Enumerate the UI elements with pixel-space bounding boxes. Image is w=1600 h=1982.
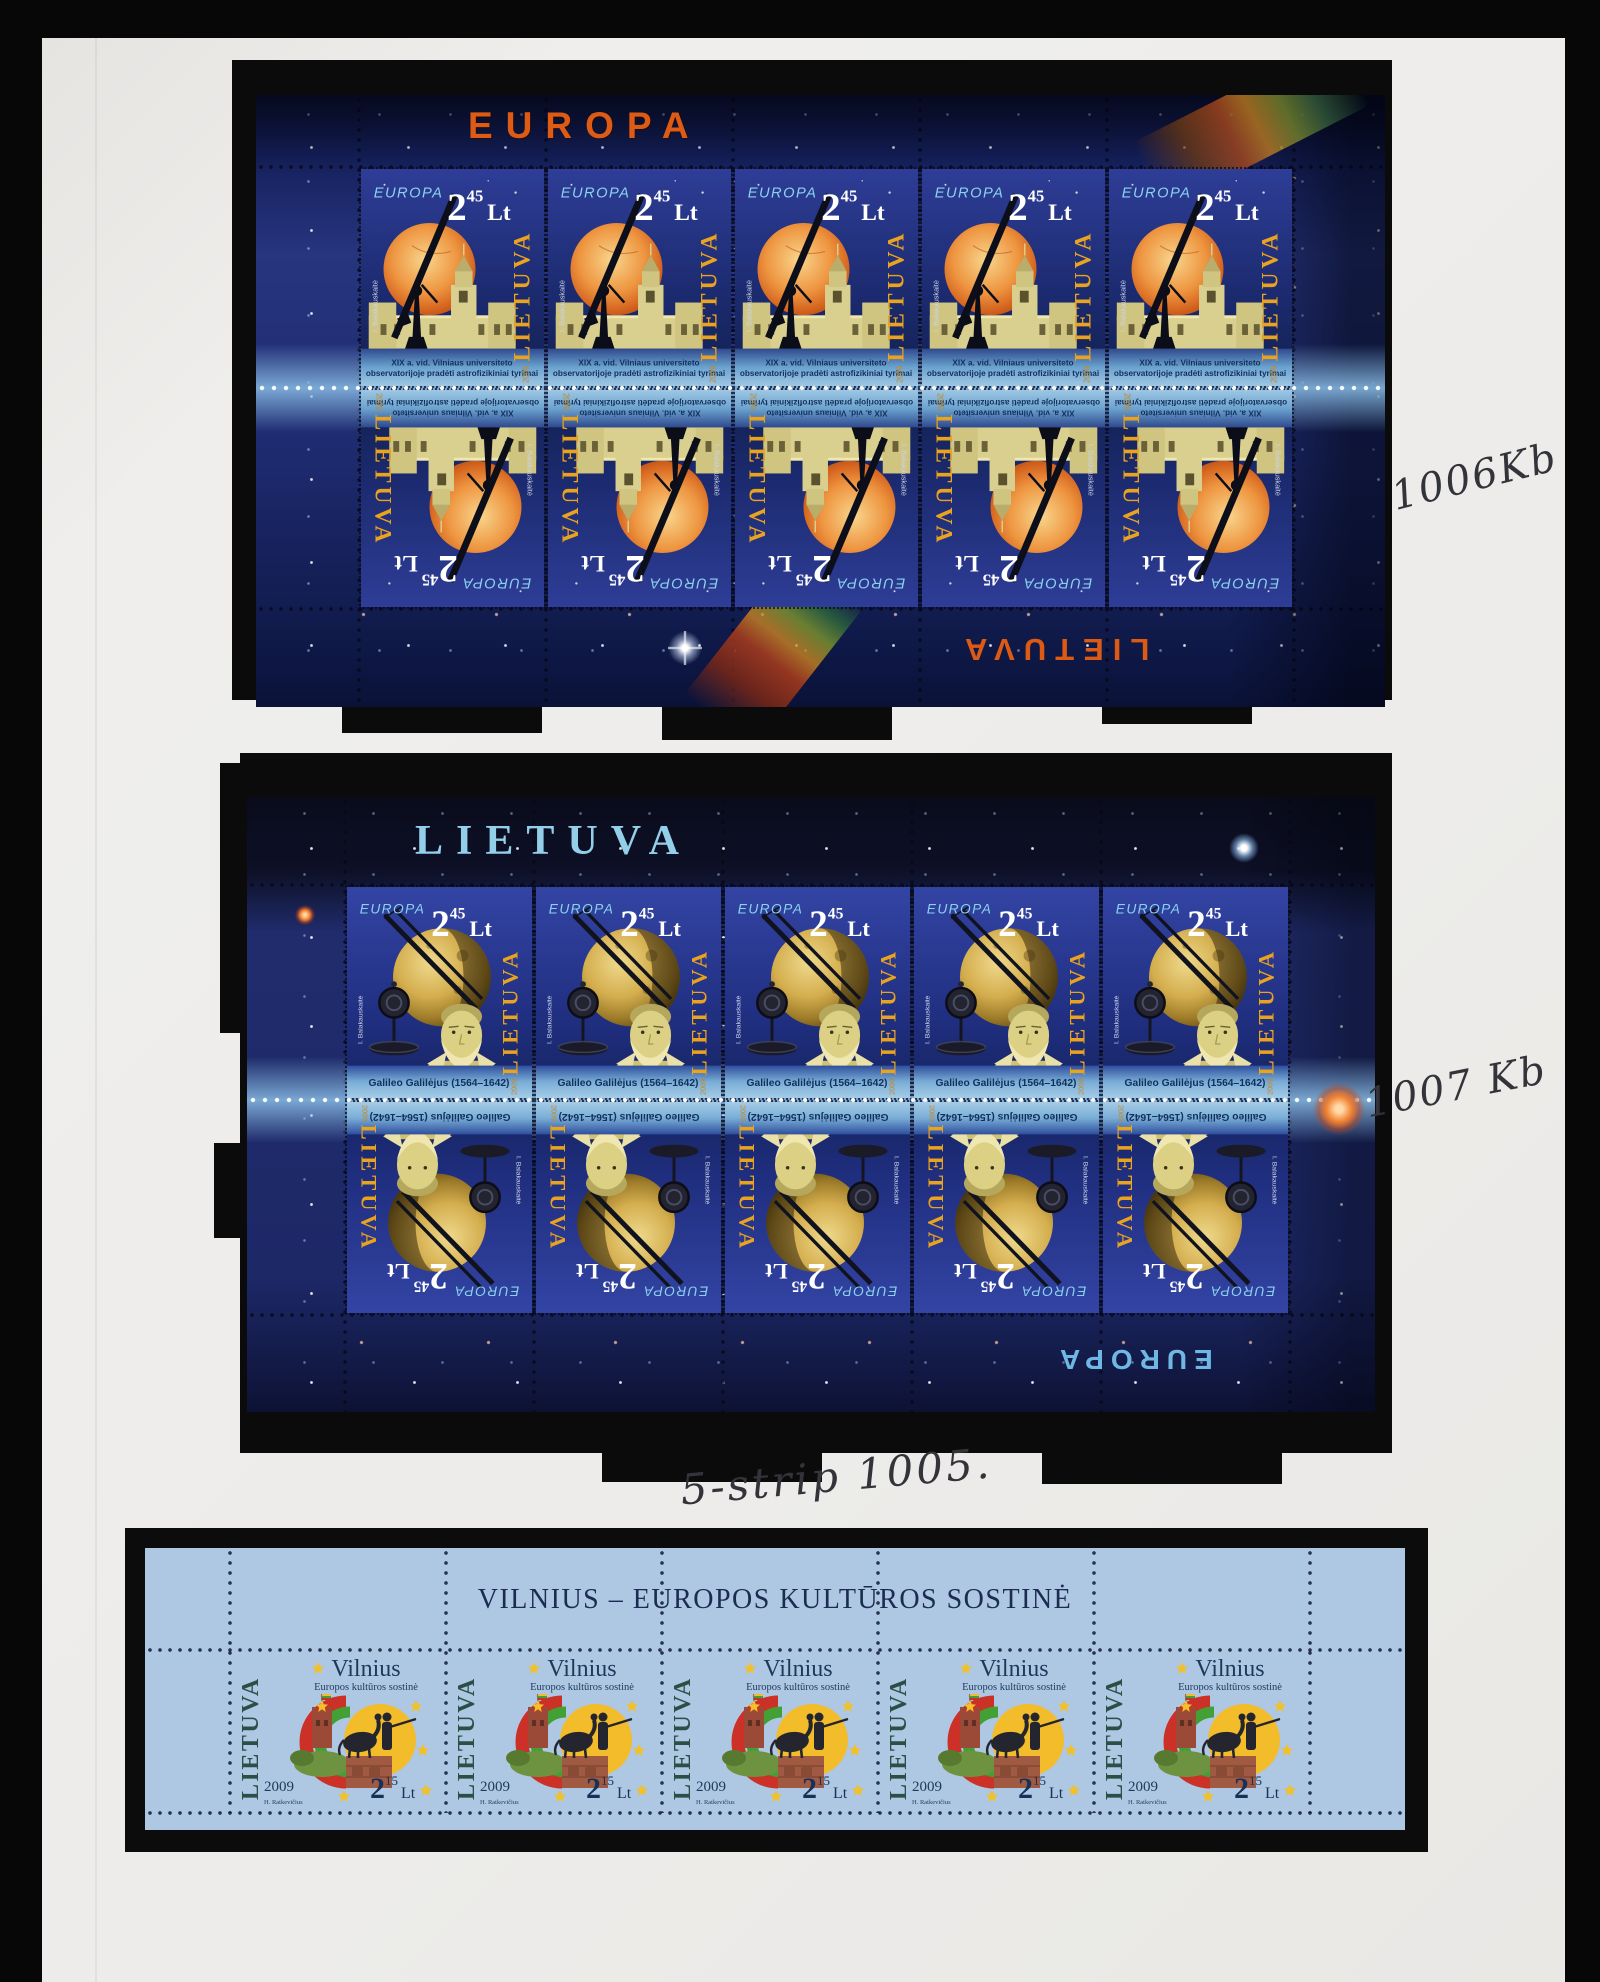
galileo-stamp-inverted: Galileo Galilėjus (1564–1642) EUROPA 245… — [534, 1100, 723, 1315]
year-label: 2009 — [912, 1779, 942, 1795]
denomination: 215Lt — [370, 1772, 416, 1805]
eu-star — [410, 1700, 422, 1712]
vilnius-stamp: LIETUVA Vilnius Europos kultūros sostinė… — [446, 1650, 662, 1813]
title-star-icon — [744, 1662, 756, 1674]
stamp-caption-line2: observatorijoje pradėti astrofizikiniai … — [366, 369, 538, 378]
eu-star — [633, 1744, 645, 1756]
vilnius-stamp: LIETUVA Vilnius Europos kultūros sostinė… — [230, 1650, 446, 1813]
year-label: 2009 — [1265, 1079, 1274, 1095]
designer-name: I. Balakauskaitė — [932, 280, 941, 332]
svg-text:I. Balakauskaitė: I. Balakauskaitė — [525, 444, 534, 496]
eu-star — [1058, 1700, 1070, 1712]
svg-text:LIETUVA: LIETUVA — [1118, 415, 1144, 547]
designer-name: I. Balakauskaitė — [1119, 280, 1128, 332]
year-label: 2009 — [480, 1779, 510, 1795]
stamp-subtitle: Europos kultūros sostinė — [530, 1682, 634, 1693]
svg-text:Galileo Galilėjus (1564–1642): Galileo Galilėjus (1564–1642) — [1125, 1111, 1266, 1122]
handwritten-note-top-sheet: 1006Kb — [1387, 434, 1562, 520]
galileo-stamp: Galileo Galilėjus (1564–1642) EUROPA 245… — [912, 885, 1101, 1100]
year-label: 2009 — [895, 366, 904, 383]
svg-text:EUROPA: EUROPA — [832, 1283, 898, 1298]
middle-sheet-mount-tab — [1042, 1436, 1282, 1484]
country-name-vertical: LIETUVA — [509, 230, 535, 362]
svg-text:EUROPA: EUROPA — [1210, 575, 1280, 591]
stamp-caption-line1: XIX a. vid. Vilniaus universiteto — [765, 358, 886, 367]
eu-star — [1065, 1744, 1077, 1756]
bright-blue-star — [1229, 833, 1259, 863]
vilnius-stamp: LIETUVA Vilnius Europos kultūros sostinė… — [1094, 1650, 1310, 1813]
svg-text:I. Balakauskaitė: I. Balakauskaitė — [514, 1156, 521, 1205]
year-label: 2009 — [1076, 1079, 1085, 1095]
europa-logo: EUROPA — [927, 901, 993, 916]
country-name-vertical: LIETUVA — [1070, 230, 1096, 362]
svg-text:EUROPA: EUROPA — [454, 1283, 520, 1298]
sheet-margin-title: EUROPA — [468, 105, 702, 147]
svg-text:LIETUVA: LIETUVA — [357, 1125, 382, 1252]
europa-stamp-inverted: XIX a. vid. Vilniaus universiteto observ… — [733, 388, 920, 609]
stamp-caption: Galileo Galilėjus (1564–1642) — [369, 1078, 510, 1089]
vilnius-strip: VILNIUS – EUROPOS KULTŪROS SOSTINĖ — [145, 1548, 1405, 1830]
country-name-vertical: LIETUVA — [883, 230, 909, 362]
eu-star — [417, 1744, 429, 1756]
galileo-stamp: Galileo Galilėjus (1564–1642) EUROPA 245… — [345, 885, 534, 1100]
country-name-vertical: LIETUVA — [1064, 948, 1089, 1075]
svg-text:I. Balakauskaitė: I. Balakauskaitė — [1086, 444, 1095, 496]
svg-text:observatorijoje pradėti astrof: observatorijoje pradėti astrofizikiniai … — [1115, 398, 1287, 407]
svg-text:observatorijoje pradėti astrof: observatorijoje pradėti astrofizikiniai … — [741, 398, 913, 407]
svg-text:EUROPA: EUROPA — [1210, 1283, 1276, 1298]
galileo-stamp-inverted: Galileo Galilėjus (1564–1642) EUROPA 245… — [1101, 1100, 1290, 1315]
eu-star — [849, 1744, 861, 1756]
eu-star — [554, 1790, 566, 1802]
stamp-caption: Galileo Galilėjus (1564–1642) — [1125, 1078, 1266, 1089]
europa-stamp: XIX a. vid. Vilniaus universiteto observ… — [359, 167, 546, 388]
svg-text:2009: 2009 — [1117, 1105, 1126, 1121]
stamp-caption-line2: observatorijoje pradėti astrofizikiniai … — [1114, 369, 1286, 378]
vilnius-stamp: LIETUVA Vilnius Europos kultūros sostinė… — [662, 1650, 878, 1813]
europa-stamp: XIX a. vid. Vilniaus universiteto observ… — [733, 167, 920, 388]
svg-text:EUROPA: EUROPA — [649, 575, 719, 591]
year-label: 2009 — [1269, 366, 1278, 383]
designer-name: I. Balakauskaitė — [358, 995, 365, 1044]
country-name-vertical: LIETUVA — [875, 948, 900, 1075]
galileo-stamp-inverted: Galileo Galilėjus (1564–1642) EUROPA 245… — [912, 1100, 1101, 1315]
europa-stamp-inverted: XIX a. vid. Vilniaus universiteto observ… — [920, 388, 1107, 609]
europa-logo: EUROPA — [561, 185, 631, 201]
year-label: 2009 — [887, 1079, 896, 1095]
svg-text:LIETUVA: LIETUVA — [546, 1125, 571, 1252]
denomination: 215Lt — [1018, 1772, 1064, 1805]
year-label: 2009 — [698, 1079, 707, 1095]
stamp-title: Vilnius — [763, 1656, 832, 1682]
country-name-vertical: LIETUVA — [454, 1676, 480, 1800]
stamp-subtitle: Europos kultūros sostinė — [746, 1682, 850, 1693]
stamp-subtitle: Europos kultūros sostinė — [314, 1682, 418, 1693]
bright-orange-star — [1313, 1083, 1365, 1135]
europa-logo: EUROPA — [738, 901, 804, 916]
svg-text:2009: 2009 — [739, 1105, 748, 1121]
vilnius-stamp: LIETUVA Vilnius Europos kultūros sostinė… — [878, 1650, 1094, 1813]
stamp-caption-line1: XIX a. vid. Vilniaus universiteto — [578, 358, 699, 367]
europa-stamp-inverted: XIX a. vid. Vilniaus universiteto observ… — [359, 388, 546, 609]
europa-stamp: XIX a. vid. Vilniaus universiteto observ… — [546, 167, 733, 388]
svg-text:2009: 2009 — [361, 1105, 370, 1121]
denomination: 215Lt — [802, 1772, 848, 1805]
sheet-margin-title: LIETUVA — [415, 817, 692, 865]
year-label: 2009 — [1128, 1779, 1158, 1795]
eu-star — [1202, 1790, 1214, 1802]
eu-star — [1068, 1784, 1080, 1796]
denomination: 215Lt — [586, 1772, 632, 1805]
designer-name: I. Balakauskaitė — [558, 280, 567, 332]
denomination: 215Lt — [1234, 1772, 1280, 1805]
year-label: 2009 — [708, 366, 717, 383]
stamp-title: Vilnius — [331, 1656, 400, 1682]
svg-text:2009: 2009 — [928, 1105, 937, 1121]
eu-star — [420, 1784, 432, 1796]
photo-of-stamp-album-page: EUROPA LIETUVA — [0, 0, 1600, 1982]
year-label: 2009 — [696, 1779, 726, 1795]
stamp-caption-line2: observatorijoje pradėti astrofizikiniai … — [740, 369, 912, 378]
eu-star — [1284, 1784, 1296, 1796]
galileo-stamp: Galileo Galilėjus (1564–1642) EUROPA 245… — [534, 885, 723, 1100]
designer-name: I. Balakauskaitė — [371, 280, 380, 332]
title-star-icon — [528, 1662, 540, 1674]
country-name-vertical: LIETUVA — [1257, 230, 1283, 362]
middle-sheet-mount-tab — [214, 1143, 246, 1238]
svg-text:LIETUVA: LIETUVA — [931, 415, 957, 547]
eu-star — [1274, 1700, 1286, 1712]
europa-logo: EUROPA — [935, 185, 1005, 201]
designer-name: H. Ratkevičius — [696, 1799, 735, 1806]
svg-text:I. Balakauskaitė: I. Balakauskaitė — [703, 1156, 710, 1205]
svg-text:I. Balakauskaitė: I. Balakauskaitė — [712, 444, 721, 496]
svg-text:Galileo Galilėjus (1564–1642): Galileo Galilėjus (1564–1642) — [369, 1111, 510, 1122]
designer-name: I. Balakauskaitė — [1114, 995, 1121, 1044]
designer-name: H. Ratkevičius — [480, 1799, 519, 1806]
eu-star — [1281, 1744, 1293, 1756]
small-orange-star — [295, 905, 315, 925]
svg-text:2009: 2009 — [562, 393, 571, 410]
designer-name: H. Ratkevičius — [1128, 1799, 1167, 1806]
strip-header-title: VILNIUS – EUROPOS KULTŪROS SOSTINĖ — [145, 1584, 1405, 1616]
stamp-subtitle: Europos kultūros sostinė — [1178, 1682, 1282, 1693]
stamp-caption-line1: XIX a. vid. Vilniaus universiteto — [1139, 358, 1260, 367]
country-name-vertical: LIETUVA — [1102, 1676, 1128, 1800]
svg-text:Galileo Galilėjus (1564–1642): Galileo Galilėjus (1564–1642) — [936, 1111, 1077, 1122]
designer-name: H. Ratkevičius — [264, 1799, 303, 1806]
svg-text:LIETUVA: LIETUVA — [370, 415, 396, 547]
middle-sheet-mount-tab — [220, 763, 246, 1033]
svg-text:I. Balakauskaitė: I. Balakauskaitė — [899, 444, 908, 496]
eu-star — [338, 1790, 350, 1802]
sheet-margin-title-inverted: LIETUVA — [956, 631, 1149, 667]
bright-star — [668, 631, 702, 665]
svg-text:LIETUVA: LIETUVA — [924, 1125, 949, 1252]
galileo-stamp-inverted: Galileo Galilėjus (1564–1642) EUROPA 245… — [723, 1100, 912, 1315]
europa-stamp: XIX a. vid. Vilniaus universiteto observ… — [1107, 167, 1294, 388]
sheet-margin-title-inverted: EUROPA — [1053, 1343, 1213, 1375]
svg-text:LIETUVA: LIETUVA — [1113, 1125, 1138, 1252]
galileo-stamp-inverted: Galileo Galilėjus (1564–1642) EUROPA 245… — [345, 1100, 534, 1315]
svg-text:LIETUVA: LIETUVA — [735, 1125, 760, 1252]
album-page: EUROPA LIETUVA — [42, 38, 1565, 1982]
europa-logo: EUROPA — [1122, 185, 1192, 201]
stamp-title: Vilnius — [547, 1656, 616, 1682]
stamp-caption: Galileo Galilėjus (1564–1642) — [936, 1078, 1077, 1089]
svg-text:Galileo Galilėjus (1564–1642): Galileo Galilėjus (1564–1642) — [747, 1111, 888, 1122]
country-name-vertical: LIETUVA — [686, 948, 711, 1075]
svg-text:I. Balakauskaitė: I. Balakauskaitė — [1270, 1156, 1277, 1205]
svg-text:LIETUVA: LIETUVA — [557, 415, 583, 547]
svg-text:EUROPA: EUROPA — [836, 575, 906, 591]
stamp-caption-line2: observatorijoje pradėti astrofizikiniai … — [927, 369, 1099, 378]
europa-logo: EUROPA — [1116, 901, 1182, 916]
title-star-icon — [1176, 1662, 1188, 1674]
europa-stamp: XIX a. vid. Vilniaus universiteto observ… — [920, 167, 1107, 388]
europa-logo: EUROPA — [549, 901, 615, 916]
svg-text:Galileo Galilėjus (1564–1642): Galileo Galilėjus (1564–1642) — [558, 1111, 699, 1122]
eu-star — [852, 1784, 864, 1796]
europa-stamp-inverted: XIX a. vid. Vilniaus universiteto observ… — [546, 388, 733, 609]
svg-text:I. Balakauskaitė: I. Balakauskaitė — [892, 1156, 899, 1205]
svg-text:I. Balakauskaitė: I. Balakauskaitė — [1273, 444, 1282, 496]
svg-text:I. Balakauskaitė: I. Balakauskaitė — [1081, 1156, 1088, 1205]
svg-text:XIX a. vid. Vilniaus universit: XIX a. vid. Vilniaus universiteto — [766, 409, 887, 418]
svg-text:EUROPA: EUROPA — [643, 1283, 709, 1298]
country-name-vertical: LIETUVA — [1253, 948, 1278, 1075]
stamp-caption: Galileo Galilėjus (1564–1642) — [747, 1078, 888, 1089]
year-label: 2009 — [521, 366, 530, 383]
designer-name: I. Balakauskaitė — [925, 995, 932, 1044]
galileo-stamp: Galileo Galilėjus (1564–1642) EUROPA 245… — [1101, 885, 1290, 1100]
svg-text:XIX a. vid. Vilniaus universit: XIX a. vid. Vilniaus universiteto — [953, 409, 1074, 418]
stamp-caption-line1: XIX a. vid. Vilniaus universiteto — [952, 358, 1073, 367]
year-label: 2009 — [509, 1079, 518, 1095]
galileo-sheetlet: LIETUVA EUROPA — [247, 797, 1375, 1412]
designer-name: H. Ratkevičius — [912, 1799, 951, 1806]
europa-logo: EUROPA — [360, 901, 426, 916]
year-label: 2009 — [1082, 366, 1091, 383]
svg-text:observatorijoje pradėti astrof: observatorijoje pradėti astrofizikiniai … — [928, 398, 1100, 407]
eu-star — [626, 1700, 638, 1712]
svg-text:observatorijoje pradėti astrof: observatorijoje pradėti astrofizikiniai … — [554, 398, 726, 407]
europa-logo: EUROPA — [748, 185, 818, 201]
stamp-caption: Galileo Galilėjus (1564–1642) — [558, 1078, 699, 1089]
stamp-caption-line1: XIX a. vid. Vilniaus universiteto — [391, 358, 512, 367]
europa-astronomy-sheetlet: EUROPA LIETUVA — [256, 95, 1385, 707]
country-name-vertical: LIETUVA — [670, 1676, 696, 1800]
svg-text:XIX a. vid. Vilniaus universit: XIX a. vid. Vilniaus universiteto — [1140, 409, 1261, 418]
eu-star — [986, 1790, 998, 1802]
svg-text:observatorijoje pradėti astrof: observatorijoje pradėti astrofizikiniai … — [367, 398, 539, 407]
svg-text:XIX a. vid. Vilniaus universit: XIX a. vid. Vilniaus universiteto — [579, 409, 700, 418]
svg-text:EUROPA: EUROPA — [1021, 1283, 1087, 1298]
svg-text:2009: 2009 — [749, 393, 758, 410]
designer-name: I. Balakauskaitė — [745, 280, 754, 332]
svg-text:2009: 2009 — [936, 393, 945, 410]
stamp-caption-line2: observatorijoje pradėti astrofizikiniai … — [553, 369, 725, 378]
stamp-title: Vilnius — [979, 1656, 1048, 1682]
europa-stamp-inverted: XIX a. vid. Vilniaus universiteto observ… — [1107, 388, 1294, 609]
stamp-subtitle: Europos kultūros sostinė — [962, 1682, 1066, 1693]
vilnius-strip-mount: VILNIUS – EUROPOS KULTŪROS SOSTINĖ — [125, 1528, 1428, 1852]
eu-star — [636, 1784, 648, 1796]
svg-text:2009: 2009 — [1123, 393, 1132, 410]
designer-name: I. Balakauskaitė — [547, 995, 554, 1044]
svg-text:EUROPA: EUROPA — [462, 575, 532, 591]
eu-star — [842, 1700, 854, 1712]
country-name-vertical: LIETUVA — [886, 1676, 912, 1800]
country-name-vertical: LIETUVA — [696, 230, 722, 362]
year-label: 2009 — [264, 1779, 294, 1795]
svg-text:LIETUVA: LIETUVA — [744, 415, 770, 547]
eu-star — [770, 1790, 782, 1802]
svg-text:XIX a. vid. Vilniaus universit: XIX a. vid. Vilniaus universiteto — [392, 409, 513, 418]
svg-text:2009: 2009 — [375, 393, 384, 410]
galileo-stamp: Galileo Galilėjus (1564–1642) EUROPA 245… — [723, 885, 912, 1100]
stamp-title: Vilnius — [1195, 1656, 1264, 1682]
svg-text:2009: 2009 — [550, 1105, 559, 1121]
country-name-vertical: LIETUVA — [238, 1676, 264, 1800]
vilnius-stamp-row: LIETUVA Vilnius Europos kultūros sostinė… — [230, 1650, 1310, 1813]
designer-name: I. Balakauskaitė — [736, 995, 743, 1044]
title-star-icon — [960, 1662, 972, 1674]
europa-logo: EUROPA — [374, 185, 444, 201]
title-star-icon — [312, 1662, 324, 1674]
country-name-vertical: LIETUVA — [497, 948, 522, 1075]
svg-text:EUROPA: EUROPA — [1023, 575, 1093, 591]
